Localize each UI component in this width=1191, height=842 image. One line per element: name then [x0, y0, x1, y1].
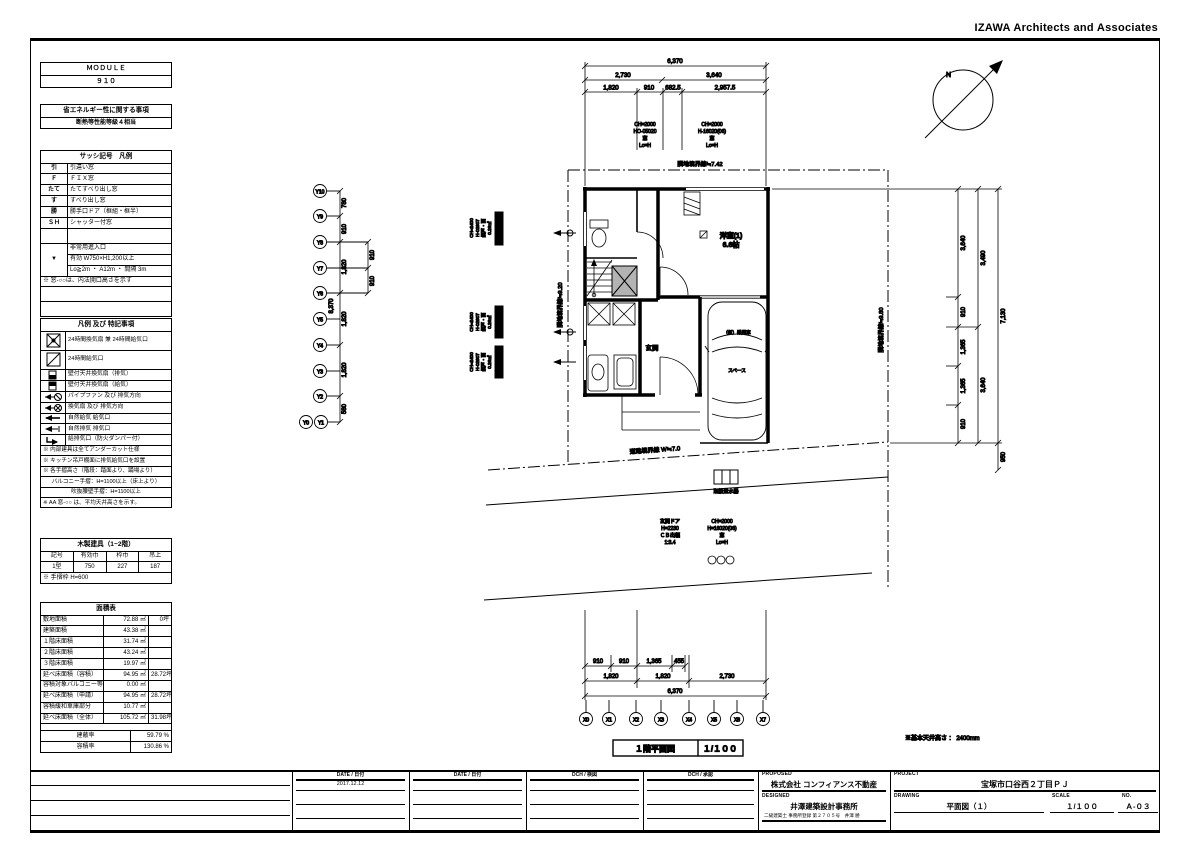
- grid-y-label: Y0: [303, 421, 309, 427]
- dim-top-mid-1: 2,730: [615, 72, 631, 79]
- shaft: [612, 266, 637, 296]
- road-boundary-label: 道路境界線 W≒7.0: [629, 444, 681, 456]
- water-meter: [714, 470, 738, 484]
- grid-y-label: Y10: [316, 190, 325, 196]
- dim-top-sub-4: 2,957.5: [715, 85, 736, 92]
- boundary-left-label: 隣地境界線≒9.20: [556, 282, 564, 327]
- win-top2-l3: 窓: [709, 135, 714, 142]
- dim-left-seg-1: 780: [342, 197, 348, 208]
- grid-x-label: X4: [686, 718, 692, 724]
- dim-left-total: 8,370: [329, 298, 335, 314]
- floor-plan-canvas: N 隣地境界線≒7.42 隣地境界線≒9.20 隣地境界線≒9.80 道路境界線…: [0, 0, 1191, 842]
- win-top1-l3: 窓: [642, 135, 647, 142]
- grid-y-label: Y4: [317, 344, 323, 350]
- designed-label: DESIGNED: [762, 793, 790, 799]
- dim-bottom-total: 6,370: [667, 689, 683, 695]
- svg-text:CH=2400: CH=2400: [469, 218, 474, 238]
- dim-left-seg-4: 1,820: [342, 311, 348, 327]
- door-note-l4: 1:3.4: [664, 540, 675, 546]
- dim-right-mid-2: 3,640: [981, 377, 987, 393]
- win-top1-l1: CH=2000: [634, 122, 655, 128]
- svg-text:0.26㎡: 0.26㎡: [486, 315, 492, 329]
- svg-text:CH=2400: CH=2400: [469, 352, 474, 372]
- grid-y-label: Y3: [317, 370, 323, 376]
- svg-text:網戸・面: 網戸・面: [480, 312, 487, 331]
- dim-left-seg-6: 580: [342, 403, 348, 414]
- dim-bottom-sub-3: 1,365: [646, 659, 662, 665]
- svg-text:CH=2400: CH=2400: [469, 312, 474, 332]
- dim-lines-left: [337, 188, 371, 425]
- porch-steps: [622, 395, 700, 430]
- sheet-no-label: NO.: [1122, 793, 1132, 799]
- entrance-label: 玄関: [646, 343, 659, 352]
- drawing-value: 平面図（１）: [894, 801, 1044, 812]
- water-meter-label: 既設量水器: [713, 488, 738, 495]
- grid-x-label: X3: [658, 718, 664, 724]
- dim-top-sub-1: 1,820: [603, 85, 619, 92]
- grid-x-label: X7: [760, 718, 766, 724]
- dim-top-sub-2: 910: [644, 85, 655, 92]
- washbasin-fixture: [588, 355, 636, 391]
- grid-x-label: X2: [633, 718, 639, 724]
- tb-col-header: DCH / 承認: [647, 771, 754, 778]
- dim-top-mid-2: 3,640: [706, 72, 722, 79]
- dim-right-seg-5: 910: [961, 418, 967, 429]
- boundary-right-label: 隣地境界線≒9.80: [877, 307, 885, 352]
- tb-date-value: 2017.12.12: [296, 781, 405, 787]
- door-note-l2: H=2230: [661, 526, 679, 532]
- grid-y-label: Y6: [317, 292, 323, 298]
- project-value: 宝塚市口谷西２丁目ＰＪ: [894, 779, 1156, 790]
- dim-left-sub-2: 910: [370, 275, 376, 286]
- win-bottom-l1: CH=2000: [711, 519, 732, 525]
- win-top2-l1: CH=2000: [701, 122, 722, 128]
- dim-bottom-mid-2: 1,820: [655, 674, 671, 680]
- proposed-value: 株式会社 コンフィアンス不動産: [762, 779, 886, 790]
- window-annotation-bars: [495, 212, 503, 378]
- dim-right-seg-3: 1,365: [961, 339, 967, 355]
- staircase: [587, 259, 612, 297]
- win-bottom-l4: Lo=H: [716, 540, 728, 546]
- win-top1-l4: Lo=H: [639, 143, 651, 149]
- dim-bottom-sub-1: 910: [593, 659, 604, 665]
- dim-top-total: 6,370: [667, 58, 683, 65]
- room1-size: 6.6帖: [723, 240, 740, 249]
- grid-x-label: X6: [734, 718, 740, 724]
- svg-text:0.26㎡: 0.26㎡: [486, 355, 492, 369]
- north-label: N: [946, 72, 951, 79]
- svg-text:H-02607: H-02607: [475, 219, 480, 237]
- grid-x-label: X1: [606, 718, 612, 724]
- site-boundary-lines: [488, 170, 888, 590]
- drawing-label: DRAWING: [894, 793, 920, 799]
- win-top2-l4: Lo=H: [706, 143, 718, 149]
- dim-right-seg-2: 910: [961, 306, 967, 317]
- svg-text:0.26㎡: 0.26㎡: [486, 221, 492, 235]
- boundary-top-label: 隣地境界線≒7.42: [677, 160, 722, 168]
- dim-lines-right: [772, 186, 1002, 473]
- car-label-1: （仮）乗用車: [723, 329, 751, 336]
- dim-bottom-sub-4: 455: [674, 659, 685, 665]
- svg-text:網戸・面: 網戸・面: [480, 218, 487, 237]
- grid-y-label: Y2: [317, 395, 323, 401]
- grid-y-label: Y5: [317, 318, 323, 324]
- dim-right-mid-1: 3,490: [981, 250, 987, 266]
- door-arcs: [637, 232, 698, 395]
- grid-y-label: Y1: [318, 421, 324, 427]
- win-top2-l2: H-16020(06): [698, 129, 726, 135]
- grid-y-label: Y9: [317, 215, 323, 221]
- svg-text:網戸・面: 網戸・面: [480, 352, 487, 371]
- grid-x-label: X5: [711, 718, 717, 724]
- appliance-boxes: [588, 303, 635, 325]
- proposed-label: PROPOSED: [762, 771, 792, 777]
- dim-right-extra: 950: [1001, 451, 1007, 462]
- dim-right-total: 7,130: [1001, 308, 1007, 324]
- dim-left-sub-1: 910: [370, 249, 376, 260]
- dim-left-seg-2: 910: [342, 223, 348, 234]
- dim-right-seg-4: 1,365: [961, 378, 967, 394]
- room1-name: 洋室(1): [720, 231, 743, 240]
- grid-x-label: X0: [583, 718, 589, 724]
- designed-value: 井澤建築設計事務所: [762, 801, 886, 812]
- designed-sub: 二級建築士 事務所登録 第２７０５号 井澤 勝: [764, 813, 886, 819]
- dim-top-sub-3: 682.5: [665, 85, 681, 92]
- tb-col-header: DCH / 検図: [530, 771, 639, 778]
- win-left-annotations: CH=2400 H-02607 網戸・面 0.26㎡ CH=2400 H-026…: [469, 218, 492, 372]
- grid-y-label: Y8: [317, 241, 323, 247]
- win-bottom-l2: H=16020(06): [707, 526, 737, 532]
- car-label-2: スペース: [728, 368, 746, 373]
- toilet-fixture: [590, 220, 608, 247]
- scale-label: SCALE: [1052, 793, 1070, 799]
- dim-left-seg-5: 1,820: [342, 362, 348, 378]
- dim-left-seg-3: 1,820: [342, 259, 348, 275]
- sheet-no-value: Ａ-０３: [1118, 801, 1158, 812]
- vent-arrows: [553, 230, 576, 365]
- grid-y-label: Y7: [317, 267, 323, 273]
- road-edge-lines: [484, 477, 888, 600]
- room-legend-glyph-diag: [700, 231, 707, 238]
- shutter-box: [684, 192, 700, 215]
- project-label: PROJECT: [894, 771, 919, 777]
- win-bottom-l3: 窓: [719, 532, 724, 539]
- tb-col-header: DATE / 日付: [296, 771, 405, 778]
- svg-text:H-02607: H-02607: [475, 353, 480, 371]
- dim-bottom-sub-2: 910: [619, 659, 630, 665]
- win-top1-l2: HO-05020: [633, 129, 656, 135]
- ceiling-note: ※基本天井高さ ： 2400mm: [905, 734, 980, 742]
- building-thin-walls: [585, 189, 768, 443]
- door-note-circles: [708, 556, 734, 564]
- door-note-l1: 玄関ドア: [660, 518, 680, 525]
- dim-right-seg-1: 3,640: [961, 235, 967, 251]
- dim-bottom-mid-1: 1,820: [603, 674, 619, 680]
- window-symbols: [584, 188, 764, 380]
- door-note-l3: ＣＢ出幅: [660, 532, 680, 539]
- scale-value: １/１００: [1050, 801, 1114, 812]
- dim-lines-top: [582, 62, 769, 186]
- svg-text:H-02607: H-02607: [475, 313, 480, 331]
- dim-bottom-mid-3: 2,730: [719, 674, 735, 680]
- north-arrow-icon: [925, 60, 1003, 138]
- plan-scale: １/１００: [703, 745, 737, 754]
- tb-col-header: DATE / 日付: [413, 771, 522, 778]
- building-walls: [583, 187, 770, 443]
- dim-lines-bottom: [582, 610, 769, 700]
- drawing-sheet: IZAWA Architects and Associates ＭＯＤＵＬＥ ９…: [0, 0, 1191, 842]
- plan-title: １階平面図: [635, 744, 675, 754]
